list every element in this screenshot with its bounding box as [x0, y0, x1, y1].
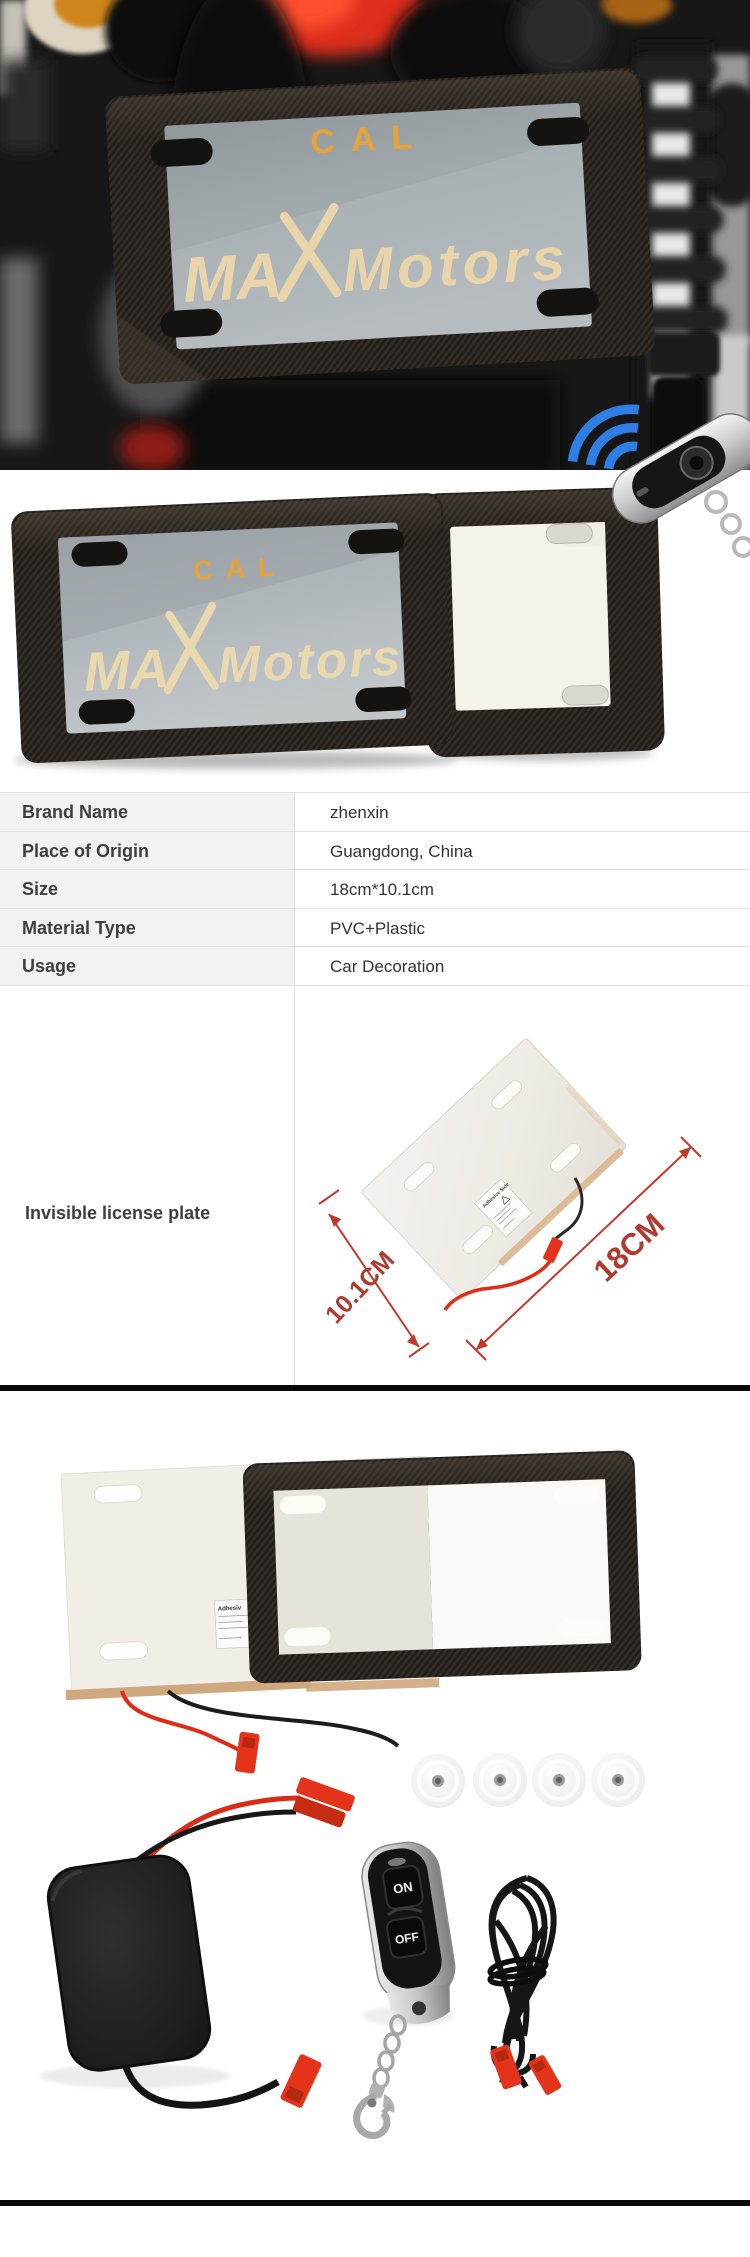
svg-text:CAL: CAL — [192, 551, 288, 585]
svg-text:18CM: 18CM — [587, 1206, 671, 1288]
svg-text:MA: MA — [181, 239, 284, 316]
svg-text:MA: MA — [82, 637, 170, 703]
svg-text:Motors: Motors — [341, 225, 571, 305]
svg-text:CAL: CAL — [309, 117, 429, 162]
svg-text:Motors: Motors — [216, 628, 403, 693]
svg-text:Adhesiv: Adhesiv — [218, 1605, 242, 1612]
svg-text:ON: ON — [392, 1879, 414, 1897]
